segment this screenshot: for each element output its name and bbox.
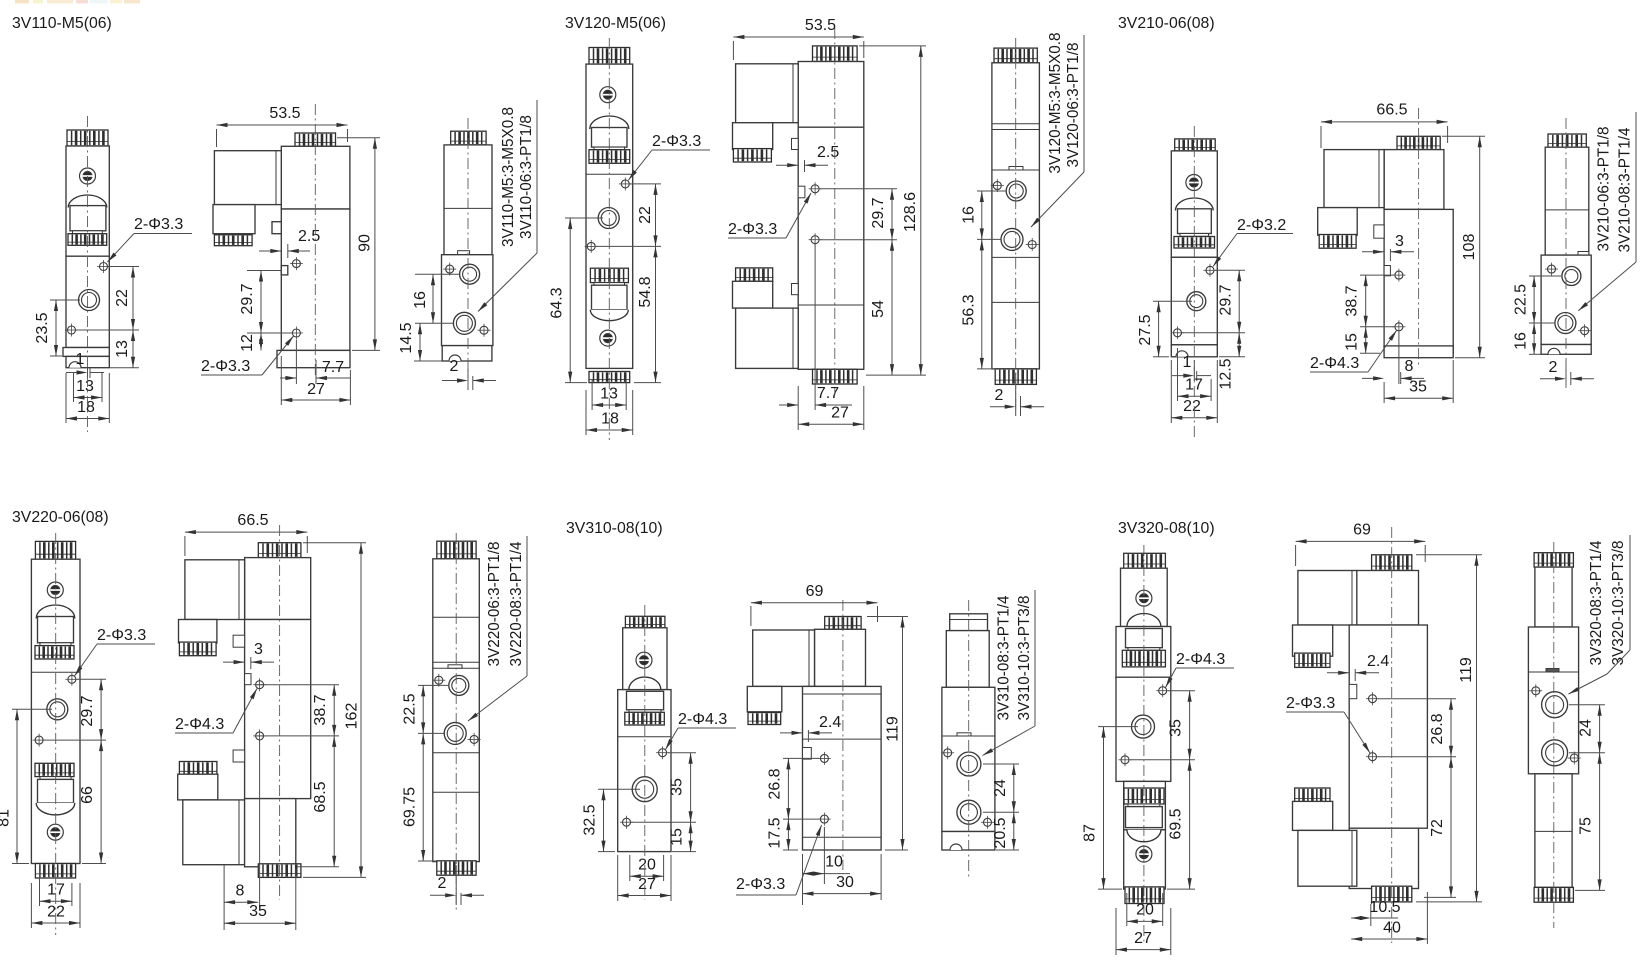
svg-text:32.5: 32.5 [582, 804, 599, 835]
svg-text:119: 119 [1458, 657, 1475, 683]
svg-text:66.5: 66.5 [1376, 102, 1407, 119]
svg-text:3V210-06(08): 3V210-06(08) [1118, 15, 1215, 32]
svg-text:26.8: 26.8 [1429, 713, 1446, 744]
svg-text:20: 20 [638, 857, 656, 874]
svg-text:27: 27 [831, 405, 849, 422]
svg-text:16: 16 [961, 206, 978, 224]
svg-text:22.5: 22.5 [402, 693, 419, 724]
svg-text:3V220-08:3-PT1/4: 3V220-08:3-PT1/4 [508, 541, 525, 666]
svg-text:53.5: 53.5 [269, 105, 300, 122]
svg-text:2-Φ3.3: 2-Φ3.3 [652, 133, 701, 150]
svg-text:15: 15 [1344, 333, 1361, 351]
svg-text:2.4: 2.4 [1367, 653, 1389, 670]
svg-text:2-Φ3.3: 2-Φ3.3 [134, 216, 183, 233]
svg-text:13: 13 [114, 340, 131, 358]
svg-text:72: 72 [1429, 819, 1446, 837]
svg-text:2-Φ3.3: 2-Φ3.3 [201, 358, 250, 375]
svg-text:27: 27 [1134, 930, 1152, 947]
svg-text:108: 108 [1461, 234, 1478, 261]
svg-text:3V310-08:3-PT1/4: 3V310-08:3-PT1/4 [996, 595, 1013, 720]
svg-text:3V110-M5:3-M5X0.8: 3V110-M5:3-M5X0.8 [500, 107, 517, 247]
svg-text:35: 35 [1409, 379, 1427, 396]
svg-text:1: 1 [76, 351, 85, 368]
svg-text:3V110-M5(06): 3V110-M5(06) [12, 15, 112, 32]
svg-text:16: 16 [412, 291, 429, 309]
svg-text:29.7: 29.7 [239, 283, 256, 314]
svg-text:53.5: 53.5 [805, 17, 836, 34]
svg-text:1: 1 [1183, 354, 1192, 371]
svg-text:18: 18 [77, 399, 95, 416]
svg-text:27.5: 27.5 [1137, 314, 1154, 345]
svg-text:3V120-M5:3-M5X0.8: 3V120-M5:3-M5X0.8 [1047, 32, 1064, 173]
svg-text:20.5: 20.5 [992, 817, 1009, 848]
svg-text:2-Φ4.3: 2-Φ4.3 [1176, 651, 1225, 668]
svg-text:81: 81 [0, 809, 13, 827]
svg-text:69: 69 [1353, 522, 1371, 539]
svg-text:119: 119 [885, 716, 902, 742]
svg-text:66: 66 [79, 786, 96, 804]
svg-text:23.5: 23.5 [34, 312, 51, 343]
svg-text:38.7: 38.7 [1344, 285, 1361, 316]
svg-text:10.5: 10.5 [1369, 899, 1400, 916]
svg-text:3V120-06:3-PT1/8: 3V120-06:3-PT1/8 [1065, 42, 1082, 167]
svg-text:35: 35 [1168, 719, 1185, 737]
svg-text:10: 10 [825, 854, 843, 871]
svg-text:54: 54 [870, 300, 887, 318]
svg-text:12: 12 [239, 334, 256, 352]
svg-text:20: 20 [1136, 902, 1154, 919]
svg-text:22: 22 [637, 206, 654, 224]
svg-text:2.4: 2.4 [819, 714, 841, 731]
svg-text:3V110-06:3-PT1/8: 3V110-06:3-PT1/8 [518, 115, 535, 239]
svg-text:3: 3 [1395, 233, 1404, 250]
svg-text:2-Φ4.3: 2-Φ4.3 [678, 711, 727, 728]
svg-text:7.7: 7.7 [322, 359, 344, 376]
svg-text:26.8: 26.8 [767, 768, 784, 799]
svg-text:2-Φ4.3: 2-Φ4.3 [1310, 355, 1359, 372]
svg-text:54.8: 54.8 [637, 276, 654, 307]
svg-text:17.5: 17.5 [767, 817, 784, 848]
svg-text:22.5: 22.5 [1513, 284, 1530, 315]
svg-text:68.5: 68.5 [312, 781, 329, 812]
svg-text:3V320-10:3-PT3/8: 3V320-10:3-PT3/8 [1610, 540, 1627, 665]
svg-text:3V320-08:3-PT1/4: 3V320-08:3-PT1/4 [1588, 540, 1605, 665]
svg-text:2-Φ3.3: 2-Φ3.3 [736, 876, 785, 893]
svg-text:3V220-06:3-PT1/8: 3V220-06:3-PT1/8 [486, 541, 503, 666]
svg-text:69.5: 69.5 [1168, 808, 1185, 839]
svg-text:87: 87 [1082, 824, 1099, 842]
svg-text:3V310-10:3-PT3/8: 3V310-10:3-PT3/8 [1016, 595, 1033, 720]
svg-text:8: 8 [1404, 358, 1413, 375]
svg-text:56.3: 56.3 [961, 294, 978, 325]
svg-text:22: 22 [114, 289, 131, 307]
svg-text:69.75: 69.75 [402, 787, 419, 827]
svg-text:2.5: 2.5 [817, 144, 839, 161]
svg-text:2: 2 [995, 387, 1004, 404]
svg-text:13: 13 [76, 378, 94, 395]
svg-text:30: 30 [836, 874, 854, 891]
svg-text:27: 27 [638, 876, 656, 893]
svg-text:16: 16 [1513, 332, 1530, 350]
svg-text:3V320-08(10): 3V320-08(10) [1118, 520, 1215, 537]
svg-text:3V210-06:3-PT1/8: 3V210-06:3-PT1/8 [1596, 126, 1613, 251]
svg-text:64.3: 64.3 [549, 287, 566, 318]
svg-text:24: 24 [992, 779, 1009, 797]
svg-text:2-Φ3.3: 2-Φ3.3 [97, 627, 146, 644]
svg-text:22: 22 [1183, 398, 1201, 415]
svg-text:2: 2 [450, 358, 459, 375]
svg-text:18: 18 [601, 411, 619, 428]
svg-text:14.5: 14.5 [398, 322, 415, 353]
svg-text:24: 24 [1578, 719, 1595, 737]
svg-text:90: 90 [357, 234, 374, 252]
svg-text:2-Φ3.2: 2-Φ3.2 [1237, 217, 1286, 234]
svg-text:2-Φ3.3: 2-Φ3.3 [1286, 695, 1335, 712]
svg-text:29.7: 29.7 [870, 197, 887, 228]
svg-text:35: 35 [249, 903, 267, 920]
svg-text:3V120-M5(06): 3V120-M5(06) [565, 15, 666, 32]
svg-text:3V220-06(08): 3V220-06(08) [12, 509, 109, 526]
svg-text:2: 2 [1549, 359, 1558, 376]
svg-text:27: 27 [307, 381, 325, 398]
svg-text:3V310-08(10): 3V310-08(10) [566, 520, 663, 537]
svg-text:15: 15 [669, 828, 686, 846]
svg-text:12.5: 12.5 [1218, 358, 1235, 389]
svg-text:7.7: 7.7 [817, 385, 839, 402]
svg-text:2-Φ4.3: 2-Φ4.3 [175, 716, 224, 733]
svg-text:38.7: 38.7 [312, 694, 329, 725]
svg-text:66.5: 66.5 [237, 512, 268, 529]
svg-text:69: 69 [806, 583, 824, 600]
svg-text:8: 8 [236, 883, 245, 900]
svg-text:2: 2 [438, 875, 447, 892]
svg-text:35: 35 [669, 778, 686, 796]
svg-text:29.7: 29.7 [79, 695, 96, 726]
svg-text:162: 162 [344, 703, 361, 730]
svg-text:128.6: 128.6 [902, 192, 919, 232]
svg-text:2.5: 2.5 [298, 228, 320, 245]
svg-text:3: 3 [254, 641, 263, 658]
svg-text:29.7: 29.7 [1218, 284, 1235, 315]
svg-text:3V210-08:3-PT1/4: 3V210-08:3-PT1/4 [1617, 127, 1634, 252]
svg-text:75: 75 [1578, 817, 1595, 835]
svg-text:2-Φ3.3: 2-Φ3.3 [728, 221, 777, 238]
